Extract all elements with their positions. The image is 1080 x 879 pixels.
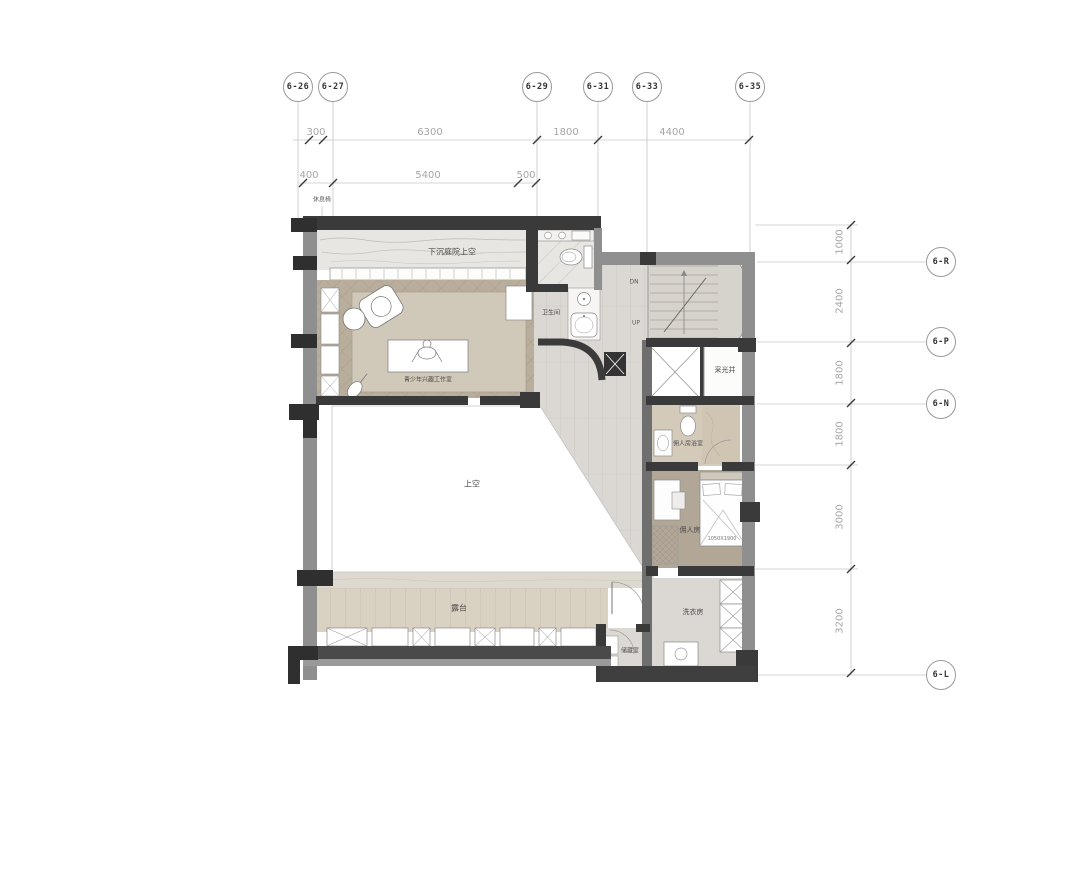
grid-bubble-6-N: 6-N	[926, 389, 956, 419]
dim-6300: 6300	[417, 127, 442, 138]
room-label-light-well: 采光井	[715, 365, 736, 375]
dim-400: 400	[299, 170, 318, 181]
shaft-box	[604, 352, 626, 376]
room-label-terrace: 露台	[451, 603, 467, 614]
room-label-courtyard-void: 下沉庭院上空	[428, 247, 476, 258]
room-label-bathroom: 卫生间	[542, 308, 560, 317]
room-label-studio: 青少年兴趣工作室	[404, 375, 452, 384]
dim-1800-right-b: 1800	[835, 421, 846, 446]
room-label-laundry: 洗衣房	[683, 607, 704, 617]
grid-bubble-6-R: 6-R	[926, 247, 956, 277]
bed-size-label: 1050X1900	[708, 536, 737, 542]
hall-vanity	[568, 288, 600, 340]
grid-bubble-6-P: 6-P	[926, 327, 956, 357]
room-label-void: 上空	[464, 479, 480, 490]
dim-4400: 4400	[659, 127, 684, 138]
dim-1800-top: 1800	[553, 127, 578, 138]
floor-plan-drawing	[0, 0, 1080, 879]
dim-1800-right-a: 1800	[835, 360, 846, 385]
grid-bubble-6-35: 6-35	[735, 72, 765, 102]
stair-up-label: UP	[632, 320, 640, 327]
dim-2400-right: 2400	[835, 288, 846, 313]
room-label-maid-bath: 佣人房浴室	[673, 439, 703, 448]
dim-3000-right: 3000	[835, 504, 846, 529]
grid-bubble-6-L: 6-L	[926, 660, 956, 690]
dim-300: 300	[306, 127, 325, 138]
room-label-storage: 储藏室	[621, 646, 639, 655]
wall-note-annotation: 休息椅	[313, 195, 331, 204]
grid-bubble-6-27: 6-27	[318, 72, 348, 102]
dim-500: 500	[516, 170, 535, 181]
grid-bubble-6-26: 6-26	[283, 72, 313, 102]
grid-bubble-6-31: 6-31	[583, 72, 613, 102]
dim-1000-right: 1000	[835, 229, 846, 254]
floor-plan-page: 6-26 6-27 6-29 6-31 6-33 6-35 6-R 6-P 6-…	[0, 0, 1080, 879]
dim-3200-right: 3200	[835, 608, 846, 633]
stair-down-label: DN	[629, 279, 638, 286]
elevator	[648, 344, 702, 400]
grid-bubble-6-29: 6-29	[522, 72, 552, 102]
dim-5400: 5400	[415, 170, 440, 181]
room-label-maid-room: 佣人房	[680, 525, 701, 535]
grid-bubble-6-33: 6-33	[632, 72, 662, 102]
